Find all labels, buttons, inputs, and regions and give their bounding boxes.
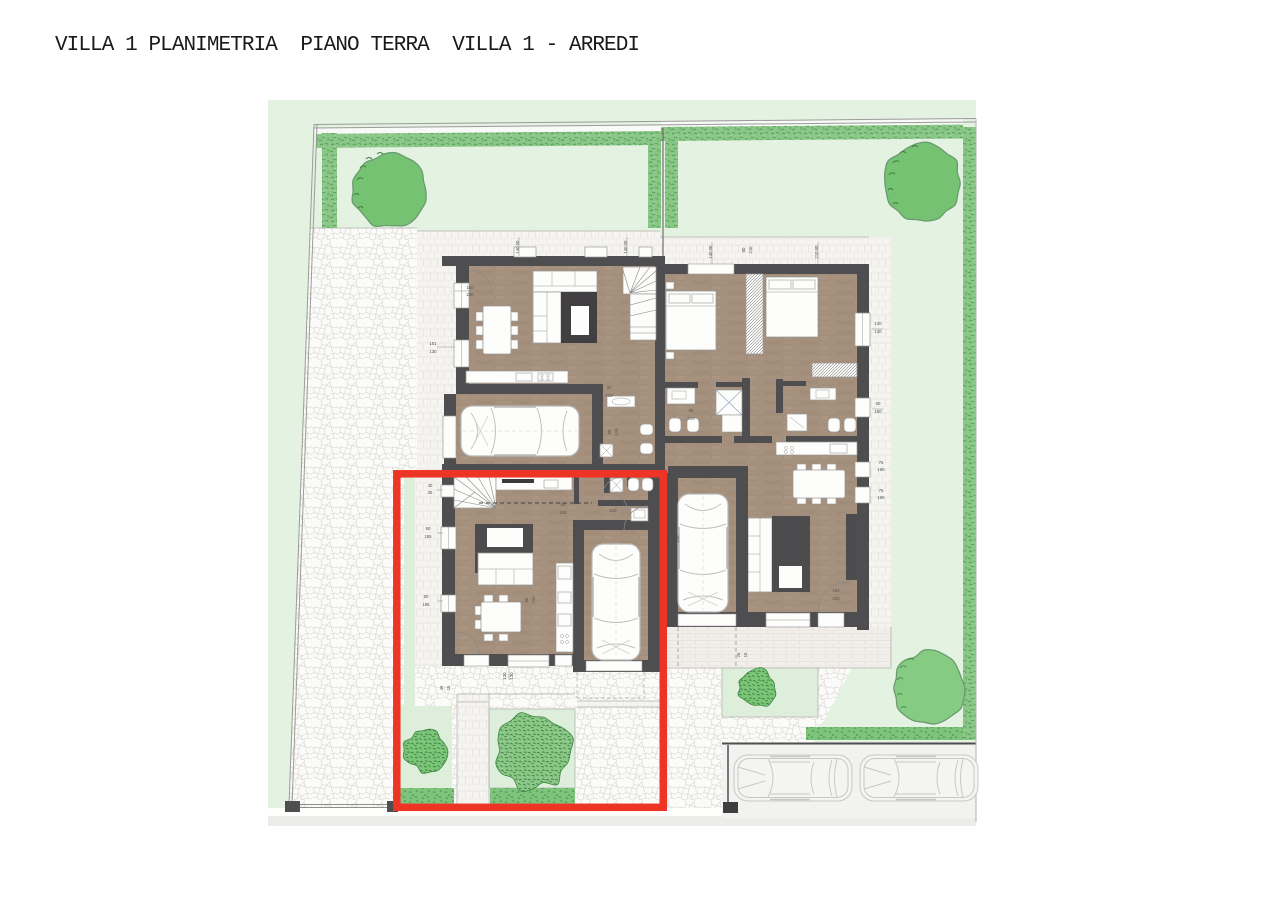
svg-text:210: 210 [748,246,753,254]
svg-text:100: 100 [832,588,840,593]
svg-text:195: 195 [424,534,432,539]
svg-text:130: 130 [874,329,882,334]
svg-text:50: 50 [426,526,431,531]
svg-text:230: 230 [466,292,474,297]
svg-text:130: 130 [509,672,514,680]
svg-text:210: 210 [559,510,567,515]
svg-text:210: 210 [740,480,748,485]
svg-text:60: 60 [607,429,612,434]
svg-text:80: 80 [524,597,529,602]
svg-text:75: 75 [879,488,884,493]
svg-text:90: 90 [607,385,612,390]
svg-text:230: 230 [832,596,840,601]
svg-text:VILLA 1 PLANIMETRIA PIANO TER: VILLA 1 PLANIMETRIA PIANO TERRA VILLA 1 … [55,34,639,57]
svg-text:210: 210 [609,508,617,513]
svg-text:100: 100 [466,285,474,290]
svg-text:50: 50 [424,594,429,599]
svg-text:25: 25 [736,652,741,657]
svg-text:120: 120 [614,428,619,436]
svg-text:210: 210 [687,416,695,421]
svg-text:46: 46 [439,685,444,690]
svg-text:195: 195 [422,602,430,607]
svg-text:165: 165 [877,467,885,472]
svg-text:210: 210 [605,393,613,398]
svg-text:130: 130 [502,672,507,680]
svg-text:180: 180 [874,409,882,414]
svg-text:80: 80 [689,408,694,413]
svg-text:60: 60 [876,401,881,406]
svg-text:35: 35 [428,490,433,495]
svg-text:80: 80 [741,247,746,252]
svg-text:210: 210 [531,596,536,604]
svg-text:15: 15 [446,685,451,690]
svg-text:75: 75 [879,460,884,465]
svg-text:165: 165 [877,495,885,500]
svg-text:15: 15 [743,652,748,657]
svg-text:90: 90 [742,472,747,477]
svg-text:210: 210 [675,535,680,543]
svg-text:80: 80 [611,500,616,505]
svg-text:80: 80 [668,536,673,541]
svg-text:130: 130 [874,321,882,326]
svg-text:80: 80 [561,502,566,507]
svg-text:130: 130 [429,349,437,354]
svg-text:40: 40 [428,483,433,488]
svg-text:151: 151 [429,341,437,346]
